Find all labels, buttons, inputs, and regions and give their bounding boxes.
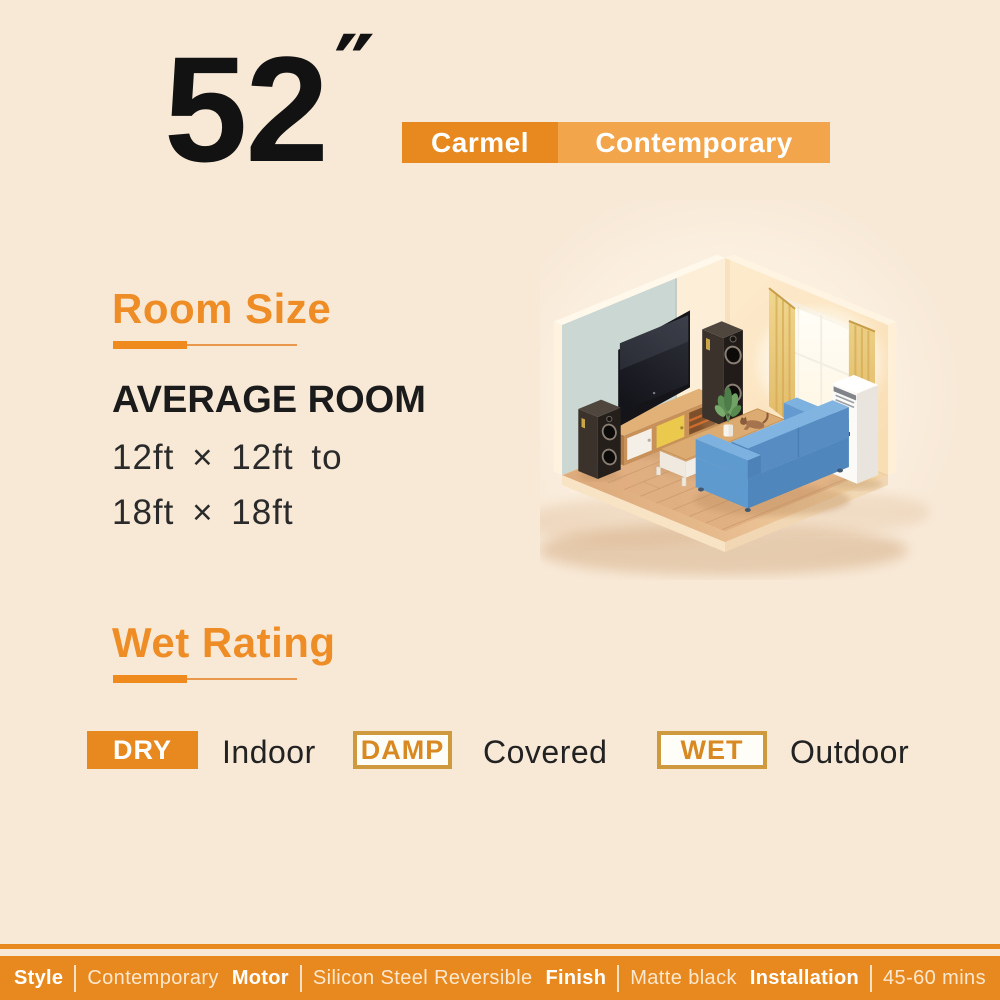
spec-label: Installation <box>750 967 859 990</box>
model-name-badge: Carmel <box>402 122 558 163</box>
fan-size-value: 52 <box>164 34 327 184</box>
spec-bar: Style Contemporary Motor Silicon Steel R… <box>0 956 1000 1000</box>
dry-location-label: Indoor <box>222 734 316 771</box>
spec-label: Finish <box>546 967 607 990</box>
room-dimensions: 12ft × 12ft to 18ft × 18ft <box>112 430 343 540</box>
spec-label: Style <box>14 967 63 990</box>
wet-rating-title: Wet Rating <box>112 622 336 664</box>
damp-badge: DAMP <box>353 731 452 769</box>
speaker-left <box>578 400 621 481</box>
room-dimensions-line1: 12ft × 12ft to <box>112 430 343 485</box>
wet-location-label: Outdoor <box>790 734 909 771</box>
wet-rating-underline <box>113 675 297 683</box>
style-name-badge: Contemporary <box>558 122 830 163</box>
room-size-title: Room Size <box>112 288 331 330</box>
spec-divider <box>300 965 302 992</box>
spec-finish: Finish Matte black <box>546 965 737 992</box>
model-badges: Carmel Contemporary <box>402 122 830 163</box>
spec-style: Style Contemporary <box>14 965 219 992</box>
room-dimensions-line2: 18ft × 18ft <box>112 485 343 540</box>
wet-badge: WET <box>657 731 767 769</box>
living-room-illustration <box>540 200 960 580</box>
spec-label: Motor <box>232 967 289 990</box>
spec-divider <box>870 965 872 992</box>
spec-divider <box>617 965 619 992</box>
spec-divider <box>74 965 76 992</box>
spec-motor: Motor Silicon Steel Reversible <box>232 965 533 992</box>
wet-rating-row: DRY Indoor DAMP Covered WET Outdoor <box>0 731 1000 771</box>
room-size-subtitle: AVERAGE ROOM <box>112 381 426 419</box>
inch-mark: ″ <box>334 24 375 116</box>
spec-value: 45-60 mins <box>883 967 986 990</box>
spec-value: Silicon Steel Reversible <box>313 967 533 990</box>
spec-value: Contemporary <box>87 967 219 990</box>
room-size-underline <box>113 341 297 349</box>
spec-installation: Installation 45-60 mins <box>750 965 986 992</box>
spec-value: Matte black <box>630 967 737 990</box>
infographic-page: 52 ″ Carmel Contemporary Room Size AVERA… <box>0 0 1000 1000</box>
dry-badge: DRY <box>87 731 198 769</box>
damp-location-label: Covered <box>483 734 607 771</box>
footer-accent-stripe <box>0 944 1000 949</box>
